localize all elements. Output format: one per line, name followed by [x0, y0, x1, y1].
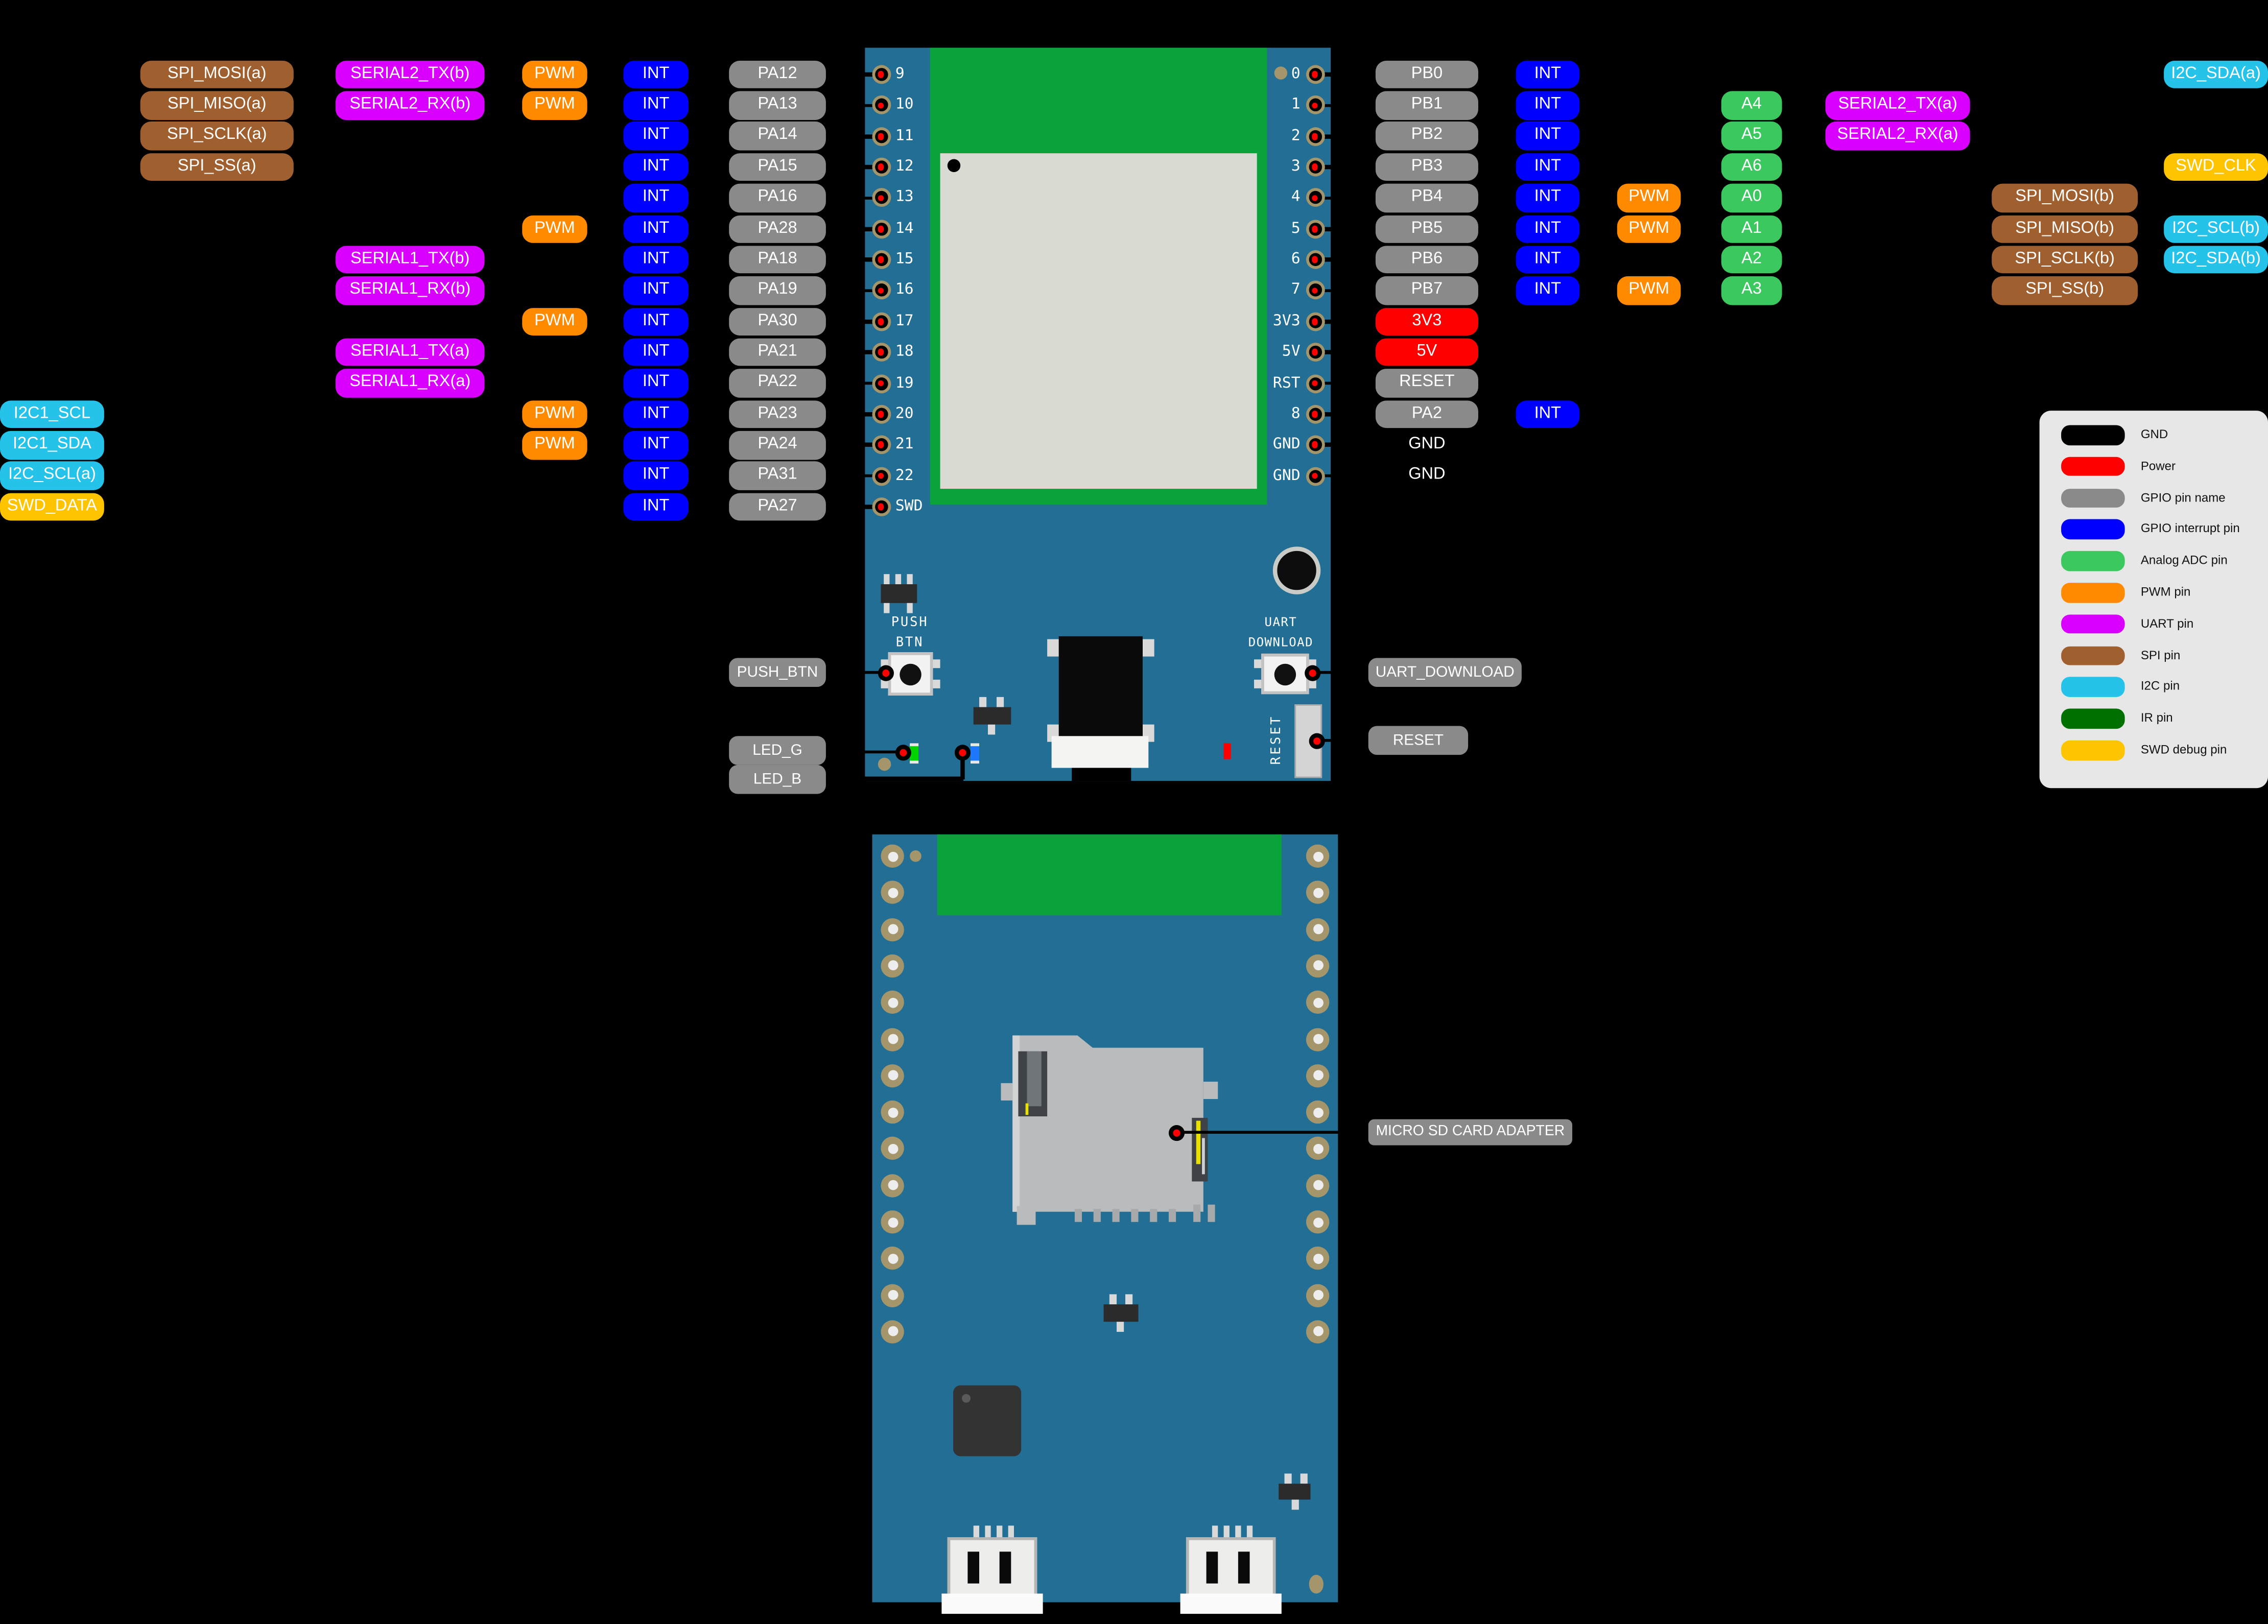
- pin-function-chip: SERIAL2_RX(b): [336, 91, 485, 120]
- button-leg: [1254, 680, 1261, 688]
- metal-shield: [940, 153, 1257, 489]
- pin-function-chip: PB0: [1376, 60, 1478, 88]
- silkscreen-line: DOWNLOAD: [1226, 634, 1335, 654]
- pin-number-label: 22: [895, 467, 948, 486]
- pin-number-label: 15: [895, 250, 948, 269]
- through-hole-pad: [881, 1320, 904, 1343]
- pin-function-chip: INT: [623, 277, 688, 305]
- sot23-transistor: [1279, 1484, 1310, 1499]
- chip-leg: [884, 574, 889, 584]
- pin-number-label: SWD: [895, 497, 948, 516]
- legend-item-label: PWM pin: [2141, 583, 2191, 602]
- pin-function-chip: INT: [1516, 122, 1580, 150]
- pin-number-label: 6: [1253, 250, 1300, 269]
- pin-number-label: 3V3: [1253, 312, 1300, 331]
- through-hole-pad: [881, 1064, 904, 1087]
- legend-swatch: [2061, 741, 2125, 760]
- pin-number-label: 20: [895, 405, 948, 424]
- usb-leg: [985, 1525, 990, 1537]
- legend-swatch: [2061, 646, 2125, 665]
- usb-connector-shell: [1052, 736, 1149, 768]
- through-hole-pad: [881, 1101, 904, 1124]
- through-hole-pad: [881, 991, 904, 1014]
- pin-function-chip: A5: [1721, 122, 1782, 150]
- sd-leg: [1193, 1205, 1200, 1222]
- legend-swatch: [2061, 551, 2125, 570]
- through-hole-pad: [1306, 991, 1329, 1014]
- pin-number-label: 17: [895, 312, 948, 331]
- sot23-transistor: [974, 707, 1011, 725]
- pin-function-chip: PA24: [729, 431, 826, 459]
- legend-item-label: Analog ADC pin: [2141, 551, 2228, 570]
- through-hole-pin: [871, 158, 890, 177]
- legend-swatch: [2061, 520, 2125, 539]
- through-hole-pad: [881, 1028, 904, 1050]
- pin-function-chip: INT: [623, 246, 688, 274]
- through-hole-pad: [1306, 918, 1329, 941]
- button-leg: [1309, 680, 1316, 688]
- legend-panel: GNDPowerGPIO pin nameGPIO interrupt pinA…: [2040, 411, 2268, 788]
- callout-wire: [1312, 671, 1369, 674]
- silkscreen-reset: RESET: [1270, 701, 1289, 778]
- sd-leg: [1150, 1209, 1157, 1222]
- callout-wire: [1176, 1130, 1369, 1134]
- through-hole-pad: [1306, 1320, 1329, 1343]
- button-leg: [933, 659, 940, 668]
- pin-function-chip: SPI_SCLK(a): [140, 122, 294, 150]
- through-hole-pin: [1306, 96, 1325, 115]
- chip-leg: [907, 603, 912, 613]
- pin-function-chip: SERIAL2_TX(b): [336, 60, 485, 88]
- pin-function-chip: A2: [1721, 246, 1782, 274]
- usb-leg: [1224, 1525, 1230, 1537]
- pin-function-chip: SPI_SS(a): [140, 153, 294, 181]
- micro-usb-connector: [948, 1537, 1037, 1601]
- legend-item-label: IR pin: [2141, 709, 2173, 728]
- chip-leg: [884, 603, 889, 613]
- pin-number-label: 12: [895, 158, 948, 177]
- pin-function-chip: INT: [1516, 215, 1580, 243]
- pin-function-chip: A3: [1721, 277, 1782, 305]
- push-button: [888, 652, 933, 696]
- pin-number-label: RST: [1253, 374, 1300, 393]
- pin-function-chip: PB1: [1376, 91, 1478, 120]
- gold-pad: [1309, 1575, 1324, 1594]
- sd-adapter-board: [872, 834, 1338, 1603]
- callout-wire: [828, 750, 903, 754]
- pin-function-chip: INT: [1516, 184, 1580, 212]
- pin-function-chip: PA12: [729, 60, 826, 88]
- pin-function-chip: PB2: [1376, 122, 1478, 150]
- through-hole-pad: [881, 881, 904, 904]
- usb-leg: [997, 1525, 1002, 1537]
- legend-item-label: Power: [2141, 457, 2176, 476]
- silkscreen-line: UART: [1226, 614, 1335, 634]
- through-hole-pin: [1306, 467, 1325, 486]
- sd-leg: [1094, 1209, 1101, 1222]
- pin-function-chip: SERIAL1_TX(a): [336, 338, 485, 366]
- pin-function-chip: SPI_SS(b): [1992, 277, 2138, 305]
- through-hole-pin: [871, 127, 890, 146]
- pinout-diagram: SPI_MOSI(a)SERIAL2_TX(b)PWMINTPA12SPI_MI…: [0, 0, 2268, 1624]
- usb-leg: [1008, 1525, 1014, 1537]
- through-hole-pin: [871, 281, 890, 300]
- pin-function-chip: SPI_MOSI(a): [140, 60, 294, 88]
- callout-uart-download: UART_DOWNLOAD: [1368, 658, 1522, 687]
- sd-leg: [1169, 1209, 1176, 1222]
- through-hole-pin: [871, 374, 890, 393]
- pin-function-chip: INT: [623, 369, 688, 397]
- pin-function-chip: I2C_SCL(b): [2164, 215, 2268, 243]
- through-hole-pad: [1306, 1174, 1329, 1197]
- pin-number-label: 18: [895, 343, 948, 362]
- sd-spring: [1027, 1052, 1041, 1107]
- through-hole-pad: [881, 1210, 904, 1233]
- sd-leg: [1208, 1205, 1215, 1222]
- chip-leg: [1292, 1499, 1299, 1510]
- pin-function-chip: SERIAL2_TX(a): [1826, 91, 1970, 120]
- pin-function-chip: I2C1_SCL: [0, 400, 104, 428]
- through-hole-pad: [881, 1247, 904, 1270]
- pin-function-chip: PB6: [1376, 246, 1478, 274]
- callout-wire: [828, 777, 963, 781]
- legend-swatch: [2061, 709, 2125, 728]
- legend-swatch: [2061, 425, 2125, 444]
- pin-function-chip: PB7: [1376, 277, 1478, 305]
- through-hole-pad: [1306, 1137, 1329, 1160]
- through-hole-pin: [1306, 127, 1325, 146]
- chip-leg: [1125, 1294, 1132, 1304]
- sot23-transistor: [1104, 1304, 1139, 1322]
- callout-led-b: LED_B: [729, 765, 826, 794]
- pin-function-chip: PA30: [729, 307, 826, 336]
- pin-number-label: 14: [895, 220, 948, 238]
- pin-function-chip: INT: [623, 307, 688, 336]
- through-hole-pad: [1306, 1101, 1329, 1124]
- pin-number-label: 13: [895, 188, 948, 207]
- pin-function-chip: I2C_SDA(b): [2164, 246, 2268, 274]
- pin-function-chip: RESET: [1376, 369, 1478, 397]
- usb-slot: [1207, 1551, 1218, 1583]
- through-hole-pad: [1306, 1064, 1329, 1087]
- button-leg: [881, 680, 888, 688]
- pin-function-chip: PWM: [1617, 277, 1681, 305]
- pin-function-chip: SERIAL2_RX(a): [1826, 122, 1970, 150]
- callout-micro-sd: MICRO SD CARD ADAPTER: [1368, 1119, 1572, 1145]
- through-hole-pin: [871, 65, 890, 84]
- usb-connector-slot: [1072, 768, 1131, 781]
- sd-leg: [1131, 1209, 1138, 1222]
- legend-item-label: SWD debug pin: [2141, 741, 2227, 760]
- through-hole-pin: [1306, 220, 1325, 238]
- through-hole-pad: [1306, 881, 1329, 904]
- pin-function-chip: INT: [1516, 246, 1580, 274]
- pin-function-chip: SPI_MOSI(b): [1992, 184, 2138, 212]
- usb-tab: [1047, 639, 1059, 657]
- pin-function-chip: PWM: [1617, 184, 1681, 212]
- through-hole-pin: [1306, 374, 1325, 393]
- callout-wire: [1316, 738, 1370, 742]
- pin-function-chip: PB4: [1376, 184, 1478, 212]
- pin-number-label: 8: [1253, 405, 1300, 424]
- through-hole-pin: [871, 436, 890, 455]
- legend-item-label: SPI pin: [2141, 646, 2181, 665]
- through-hole-pad: [1306, 1247, 1329, 1270]
- legend-item-label: GPIO pin name: [2141, 488, 2226, 508]
- pin-function-chip: PA19: [729, 277, 826, 305]
- through-hole-pad: [881, 845, 904, 868]
- pin-function-chip: PA27: [729, 493, 826, 521]
- blue-led: [971, 743, 979, 763]
- silkscreen-push-btn: PUSH BTN: [873, 614, 946, 653]
- pin-function-chip: PA18: [729, 246, 826, 274]
- pin-function-chip: INT: [623, 431, 688, 459]
- callout-led-g: LED_G: [729, 736, 826, 765]
- pin-function-chip: SWD_DATA: [0, 493, 104, 521]
- pin-number-label: 5V: [1253, 343, 1300, 362]
- pin-function-chip: A6: [1721, 153, 1782, 181]
- pin0-marker-dot: [1274, 66, 1287, 79]
- pin-function-chip: INT: [623, 215, 688, 243]
- pin-function-chip: PWM: [522, 215, 587, 243]
- usb-slot: [1238, 1551, 1250, 1583]
- usb-slot: [1000, 1551, 1011, 1583]
- pin-function-chip: INT: [623, 493, 688, 521]
- button-leg: [933, 680, 940, 688]
- pin-number-label: 9: [895, 65, 948, 84]
- callout-push-btn: PUSH_BTN: [729, 658, 826, 687]
- pin-function-chip: SPI_SCLK(b): [1992, 246, 2138, 274]
- legend-swatch: [2061, 457, 2125, 476]
- pin-function-chip: PA2: [1376, 400, 1478, 428]
- pin-function-chip: PWM: [522, 431, 587, 459]
- chip-leg: [1117, 1322, 1124, 1332]
- pin-function-chip: I2C_SDA(a): [2164, 60, 2268, 88]
- legend-item-label: GPIO interrupt pin: [2141, 520, 2240, 539]
- green-led: [910, 743, 918, 763]
- through-hole-pad: [1306, 845, 1329, 868]
- through-hole-pin: [871, 312, 890, 331]
- through-hole-pad: [1306, 954, 1329, 977]
- pin-number-label: 2: [1253, 127, 1300, 146]
- pin-number-label: GND: [1253, 467, 1300, 486]
- pin-function-chip: PWM: [522, 307, 587, 336]
- through-hole-pin: [1306, 65, 1325, 84]
- red-led: [1224, 743, 1231, 759]
- through-hole-pad: [881, 918, 904, 941]
- pin-function-chip: SPI_MISO(a): [140, 91, 294, 120]
- chip-leg: [979, 697, 986, 707]
- pin-number-label: 11: [895, 127, 948, 146]
- chip-leg: [997, 697, 1004, 707]
- through-hole-pin: [1306, 281, 1325, 300]
- pin-function-chip: INT: [623, 400, 688, 428]
- pin-number-label: GND: [1253, 436, 1300, 455]
- pin-function-chip: 3V3: [1376, 307, 1478, 336]
- pin-function-chip: PA21: [729, 338, 826, 366]
- pin-function-chip: PWM: [1617, 215, 1681, 243]
- pin-function-chip: I2C_SCL(a): [0, 462, 104, 490]
- through-hole-pin: [871, 497, 890, 516]
- pin-function-chip: GND: [1376, 431, 1478, 459]
- through-hole-pad: [1306, 1028, 1329, 1050]
- pin-number-label: 1: [1253, 96, 1300, 115]
- pin-function-chip: INT: [623, 184, 688, 212]
- pin-number-label: 7: [1253, 281, 1300, 300]
- pin-function-chip: PA14: [729, 122, 826, 150]
- pin-function-chip: SERIAL1_RX(a): [336, 369, 485, 397]
- pin-function-chip: INT: [1516, 153, 1580, 181]
- sd-tab: [1203, 1082, 1218, 1099]
- pin-function-chip: PA22: [729, 369, 826, 397]
- legend-swatch: [2061, 488, 2125, 508]
- pin-function-chip: SWD_CLK: [2164, 153, 2268, 181]
- pin-function-chip: INT: [623, 122, 688, 150]
- pin-function-chip: PWM: [522, 91, 587, 120]
- legend-swatch: [2061, 677, 2125, 697]
- usb-tab: [1143, 639, 1154, 657]
- pin-function-chip: PA13: [729, 91, 826, 120]
- pin-function-chip: PA23: [729, 400, 826, 428]
- mcu-board: 910111213141516171819202122SWD012345673V…: [865, 47, 1331, 781]
- legend-swatch: [2061, 614, 2125, 634]
- pin-function-chip: PA31: [729, 462, 826, 490]
- through-hole-pin: [871, 467, 890, 486]
- pin-function-chip: INT: [623, 338, 688, 366]
- pin-function-chip: PWM: [522, 400, 587, 428]
- usb-slot: [967, 1551, 979, 1583]
- through-hole-pin: [1306, 158, 1325, 177]
- uart-download-button: [1261, 654, 1309, 694]
- sd-spring: [1202, 1138, 1205, 1174]
- callout-wire: [828, 671, 885, 674]
- usb-leg: [1247, 1525, 1253, 1537]
- sd-contact: [1196, 1121, 1200, 1164]
- through-hole-pad: [1306, 1210, 1329, 1233]
- chip-leg: [907, 574, 912, 584]
- pin-function-chip: A0: [1721, 184, 1782, 212]
- pin-number-label: 3: [1253, 158, 1300, 177]
- silkscreen-line: PUSH: [873, 614, 946, 634]
- through-hole-pad: [881, 1137, 904, 1160]
- legend-item-label: GND: [2141, 425, 2168, 444]
- legend-swatch: [2061, 583, 2125, 602]
- through-hole-pin: [1306, 405, 1325, 424]
- pin-function-chip: PA15: [729, 153, 826, 181]
- pin-function-chip: INT: [1516, 60, 1580, 88]
- pin-function-chip: PWM: [522, 60, 587, 88]
- pin-function-chip: INT: [623, 60, 688, 88]
- pin-function-chip: SERIAL1_RX(b): [336, 277, 485, 305]
- pin-function-chip: PA16: [729, 184, 826, 212]
- pin-function-chip: INT: [1516, 277, 1580, 305]
- sd-leg: [1113, 1209, 1120, 1222]
- button-leg: [1254, 659, 1261, 668]
- rf-module: [937, 834, 1282, 916]
- micro-usb-connector: [1186, 1537, 1276, 1601]
- fiducial-dot: [910, 850, 922, 862]
- chip-leg: [1301, 1473, 1308, 1484]
- pin-function-chip: SERIAL1_TX(b): [336, 246, 485, 274]
- pin-number-label: 16: [895, 281, 948, 300]
- legend-item-label: UART pin: [2141, 614, 2193, 634]
- usb-flange: [941, 1593, 1043, 1614]
- through-hole-pin: [871, 343, 890, 362]
- chip-leg: [1109, 1294, 1117, 1304]
- callout-reset: RESET: [1368, 726, 1468, 755]
- pin-function-chip: A1: [1721, 215, 1782, 243]
- sd-leg: [1075, 1209, 1082, 1222]
- chip-leg: [988, 725, 995, 735]
- pin-function-chip: A4: [1721, 91, 1782, 120]
- usb-leg: [974, 1525, 979, 1537]
- fiducial-dot: [878, 758, 891, 771]
- silkscreen-uart-download: UART DOWNLOAD: [1226, 614, 1335, 653]
- shield-pin1-dot: [948, 159, 960, 172]
- through-hole-pin: [1306, 250, 1325, 269]
- through-hole-pad: [1306, 1283, 1329, 1306]
- pin-function-chip: INT: [623, 153, 688, 181]
- through-hole-pad: [881, 1283, 904, 1306]
- through-hole-pad: [881, 1174, 904, 1197]
- chip-leg: [895, 574, 901, 584]
- through-hole-pin: [871, 405, 890, 424]
- silkscreen-line: BTN: [873, 634, 946, 654]
- legend-item-label: I2C pin: [2141, 677, 2180, 697]
- qfn-chip: [953, 1386, 1021, 1456]
- pin-function-chip: SPI_MISO(b): [1992, 215, 2138, 243]
- pin-function-chip: INT: [623, 91, 688, 120]
- through-hole-pin: [871, 96, 890, 115]
- pin-number-label: 4: [1253, 188, 1300, 207]
- sd-contact: [1026, 1104, 1029, 1115]
- pin-number-label: 10: [895, 96, 948, 115]
- pin-number-label: 21: [895, 436, 948, 455]
- pin-function-chip: PA28: [729, 215, 826, 243]
- antenna-connector: [1273, 546, 1320, 594]
- pin-function-chip: PB3: [1376, 153, 1478, 181]
- through-hole-pin: [1306, 436, 1325, 455]
- pin-function-chip: I2C1_SDA: [0, 431, 104, 459]
- pin-number-label: 19: [895, 374, 948, 393]
- usb-flange: [1180, 1593, 1282, 1614]
- pin-number-label: 5: [1253, 220, 1300, 238]
- through-hole-pin: [871, 220, 890, 238]
- pin-function-chip: GND: [1376, 462, 1478, 490]
- through-hole-pin: [1306, 343, 1325, 362]
- through-hole-pad: [881, 954, 904, 977]
- pin-function-chip: 5V: [1376, 338, 1478, 366]
- through-hole-pin: [1306, 188, 1325, 207]
- soic-chip: [881, 584, 917, 603]
- pin-function-chip: INT: [1516, 400, 1580, 428]
- through-hole-pin: [871, 250, 890, 269]
- chip-leg: [1284, 1473, 1291, 1484]
- through-hole-pin: [871, 188, 890, 207]
- pin-function-chip: INT: [623, 462, 688, 490]
- pin-function-chip: PB5: [1376, 215, 1478, 243]
- usb-leg: [1235, 1525, 1241, 1537]
- sd-tab: [1017, 1206, 1036, 1225]
- pin-function-chip: INT: [1516, 91, 1580, 120]
- through-hole-pin: [1306, 312, 1325, 331]
- sd-tab: [1001, 1083, 1012, 1101]
- usb-leg: [1212, 1525, 1218, 1537]
